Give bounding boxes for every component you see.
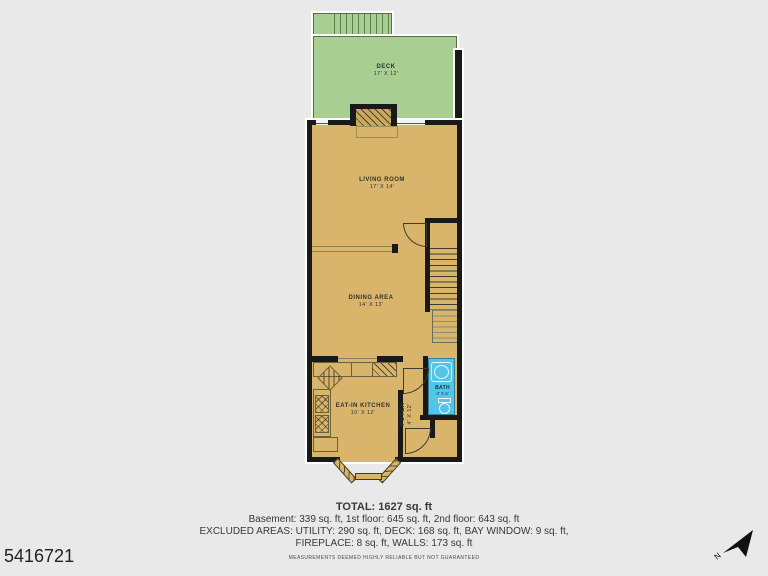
disclaimer: MEASUREMENTS DEEMED HIGHLY RELIABLE BUT …	[0, 555, 768, 561]
bath-dims: 3' X 6'	[425, 391, 460, 397]
toilet-bowl	[439, 403, 450, 414]
deck-name: DECK	[336, 63, 436, 71]
north-arrow-icon: N	[695, 518, 765, 568]
bath-wall-bottom	[420, 415, 462, 420]
stair-top-wall	[425, 218, 462, 223]
window-top-left	[316, 120, 328, 125]
deck-stairs	[313, 13, 392, 36]
bay-opening	[340, 457, 395, 462]
half-wall-line	[312, 251, 396, 252]
kitchen-appliance	[315, 415, 329, 433]
bathtub-basin	[434, 365, 449, 379]
area-summary: TOTAL: 1627 sq. ft Basement: 339 sq. ft,…	[0, 501, 768, 561]
party-wall	[455, 50, 462, 125]
deck-dims: 17' X 12'	[336, 71, 436, 78]
excluded-areas-2: FIREPLACE: 8 sq. ft, WALLS: 173 sq. ft	[0, 538, 768, 550]
staircase-upper	[430, 248, 457, 310]
fireplace-hearth	[356, 126, 398, 138]
kitchen-sink-unit	[372, 363, 396, 376]
listing-id: 5416721	[4, 546, 74, 567]
excluded-areas-1: EXCLUDED AREAS: UTILITY: 290 sq. ft, DEC…	[0, 526, 768, 538]
deck-slider-door	[397, 120, 425, 125]
half-wall-line	[312, 246, 396, 247]
north-label: N	[713, 551, 723, 562]
deck-stairs-treads	[334, 14, 391, 35]
fireplace-firebox	[356, 109, 391, 126]
counter-divider	[351, 363, 352, 376]
half-wall-post	[392, 244, 398, 253]
kitchen-opening-line	[338, 358, 377, 359]
kitchen-appliance	[315, 395, 329, 413]
floor-areas: Basement: 339 sq. ft, 1st floor: 645 sq.…	[0, 514, 768, 526]
deck-label: DECK 17' X 12'	[336, 63, 436, 78]
bath-label: BATH 3' X 6'	[425, 385, 460, 397]
bathtub	[431, 362, 452, 382]
bay-window-front	[355, 473, 382, 480]
total-area: TOTAL: 1627 sq. ft	[0, 501, 768, 514]
staircase-lower	[432, 310, 457, 343]
kitchen-counter-bottom	[313, 437, 338, 452]
bathroom: BATH 3' X 6'	[428, 358, 455, 415]
foyer-wall	[398, 390, 403, 457]
floorplan-canvas: DECK 17' X 12' LIVING ROOM 17' X 14' DIN…	[0, 0, 768, 576]
